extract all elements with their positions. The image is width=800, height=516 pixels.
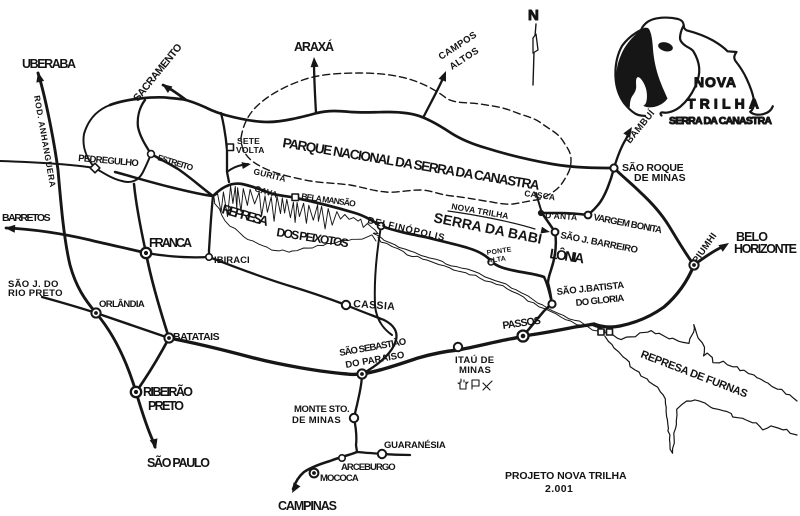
svg-text:MINAS: MINAS bbox=[459, 365, 491, 376]
svg-text:NOVA: NOVA bbox=[694, 74, 736, 90]
svg-text:PRETO: PRETO bbox=[148, 399, 185, 413]
svg-text:BARRETOS: BARRETOS bbox=[2, 212, 51, 224]
svg-text:GUARANÉSIA: GUARANÉSIA bbox=[384, 440, 446, 451]
svg-text:MOCOCA: MOCOCA bbox=[320, 473, 359, 484]
svg-text:PROJETO NOVA TRILHA: PROJETO NOVA TRILHA bbox=[505, 470, 627, 482]
svg-text:ARCEBURGO: ARCEBURGO bbox=[341, 462, 396, 473]
svg-text:ARAXÁ: ARAXÁ bbox=[294, 39, 335, 54]
svg-text:RIBEIRÃO: RIBEIRÃO bbox=[143, 384, 194, 399]
svg-text:RIO PRETO: RIO PRETO bbox=[8, 288, 63, 299]
svg-text:HORIZONTE: HORIZONTE bbox=[734, 242, 798, 256]
svg-text:DE MINAS: DE MINAS bbox=[292, 415, 341, 426]
svg-text:SERRA DA CANASTRA: SERRA DA CANASTRA bbox=[669, 115, 772, 127]
svg-text:2.001: 2.001 bbox=[545, 483, 573, 495]
svg-text:N: N bbox=[528, 7, 539, 24]
svg-text:UBERABA: UBERABA bbox=[22, 57, 77, 71]
svg-text:DE MINAS: DE MINAS bbox=[634, 172, 686, 184]
svg-text:CAMPINAS: CAMPINAS bbox=[278, 499, 338, 513]
svg-text:IBIRACI: IBIRACI bbox=[214, 255, 250, 266]
svg-text:FRANCA: FRANCA bbox=[149, 236, 193, 250]
svg-text:BATATAIS: BATATAIS bbox=[173, 331, 220, 343]
svg-text:MONTE STO.: MONTE STO. bbox=[294, 404, 350, 415]
svg-text:VOLTA: VOLTA bbox=[236, 145, 265, 155]
svg-text:SÃO PAULO: SÃO PAULO bbox=[147, 455, 211, 470]
svg-text:ORLÂNDIA: ORLÂNDIA bbox=[99, 298, 145, 310]
